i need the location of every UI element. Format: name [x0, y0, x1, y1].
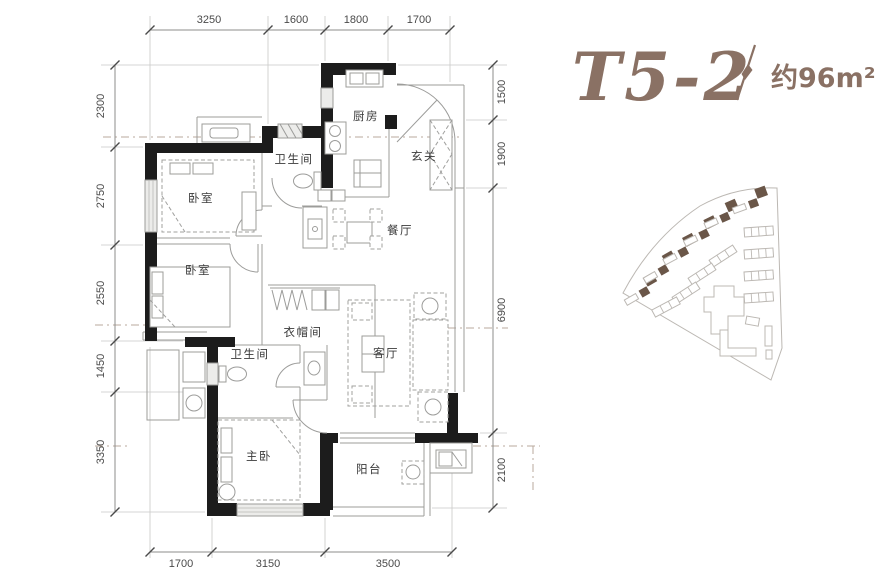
- dim-label-right-0: 1500: [496, 80, 508, 104]
- room-label-entry: 玄关: [411, 149, 437, 163]
- room-label-dining: 餐厅: [387, 223, 413, 237]
- dim-label-left-2: 2550: [95, 281, 107, 305]
- dim-label-left-4: 3350: [95, 440, 107, 464]
- room-label-kitchen: 厨房: [353, 110, 379, 123]
- room-label-balcony: 阳台: [356, 462, 382, 476]
- room-label-master-bedroom: 主卧: [246, 450, 272, 463]
- title-block: T5-2 约96m²: [572, 38, 876, 116]
- dim-label-bottom-0: 1700: [169, 558, 193, 570]
- room-label-bedroom-2: 卧室: [185, 263, 211, 277]
- room-label-living: 客厅: [373, 346, 399, 360]
- floorplan-canvas: 厨房 玄关 卫生间 餐厅 卧室 卧室 衣帽间 卫生间 客厅 主卧 阳台 3250…: [0, 0, 880, 580]
- unit-area-text: 约96m²: [771, 63, 876, 94]
- toilet-top: [294, 172, 346, 201]
- wardrobe-rail: [270, 288, 340, 310]
- dim-label-right-1: 1900: [496, 142, 508, 166]
- dim-label-right-3: 2100: [496, 458, 508, 482]
- unit-model-title: T5-2: [572, 38, 752, 116]
- floorplan-page: 厨房 玄关 卫生间 餐厅 卧室 卧室 衣帽间 卫生间 客厅 主卧 阳台 3250…: [0, 0, 880, 580]
- fridge: [354, 160, 381, 187]
- kitchen-sink: [346, 70, 383, 87]
- dining-set: [303, 207, 382, 249]
- dim-label-right-2: 6900: [496, 298, 508, 322]
- dim-label-bottom-2: 3500: [376, 558, 400, 570]
- room-label-bath-top: 卫生间: [275, 152, 314, 166]
- room-label-bath-lower: 卫生间: [231, 347, 270, 361]
- dim-label-left-3: 1450: [95, 354, 107, 378]
- room-label-cloakroom: 衣帽间: [284, 325, 323, 339]
- shower-utility: [147, 350, 205, 420]
- dim-label-top-3: 1700: [407, 14, 431, 26]
- balcony-washer: [402, 461, 424, 484]
- ac-platform: [430, 443, 472, 473]
- dim-label-top-0: 3250: [197, 14, 221, 26]
- hall-cabinet: [202, 124, 250, 142]
- site-map: [619, 186, 782, 380]
- dim-label-left-0: 2300: [95, 94, 107, 118]
- dim-label-left-1: 2750: [95, 184, 107, 208]
- toilet-lower: [219, 366, 247, 382]
- room-label-bedroom-1: 卧室: [188, 191, 214, 205]
- vanity-sink: [304, 352, 325, 385]
- dim-label-top-1: 1600: [284, 14, 308, 26]
- dim-label-top-2: 1800: [344, 14, 368, 26]
- stove: [325, 122, 346, 154]
- dim-label-bottom-1: 3150: [256, 558, 280, 570]
